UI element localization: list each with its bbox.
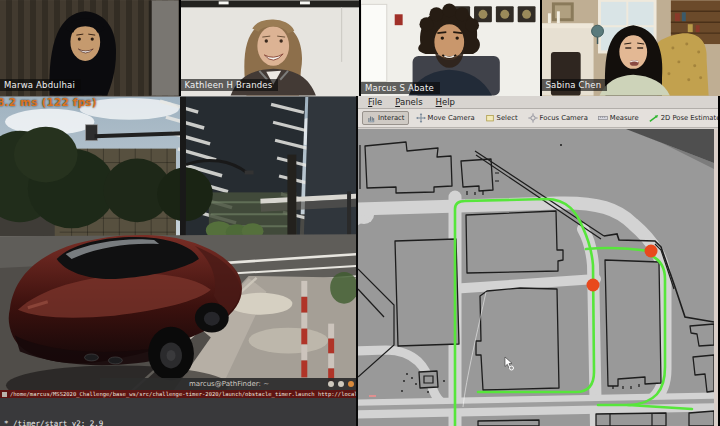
maximize-button[interactable] — [338, 381, 344, 387]
driving-simulator-viewport[interactable]: 8.2 ms (122 fps) marcus@PathFinder: ~ /h… — [0, 96, 358, 426]
move-icon — [416, 113, 426, 123]
fps-overlay: 8.2 ms (122 fps) — [0, 96, 97, 108]
tool-select[interactable]: Select — [482, 112, 521, 124]
terminal-tab[interactable]: /home/marcus/MSS2020_Challenge/base_ws/s… — [0, 390, 358, 398]
rviz-toolbar: Interact Move Camera Select Focus Camera… — [358, 109, 718, 128]
menu-file[interactable]: File — [368, 97, 382, 107]
tool-2d-pose-estimate[interactable]: 2D Pose Estimate — [646, 112, 718, 124]
terminal-titlebar[interactable]: marcus@PathFinder: ~ — [100, 378, 358, 390]
published-point — [587, 279, 600, 292]
rviz-side-panel-edge[interactable] — [714, 129, 718, 426]
rviz-window: File Panels Help Interact Move Camera Se… — [358, 96, 718, 426]
tool-move-camera[interactable]: Move Camera — [413, 112, 478, 124]
published-point — [645, 245, 658, 258]
menu-help[interactable]: Help — [436, 97, 455, 107]
video-call-strip: Marwa Abdulhai Kathleen H Brandes — [0, 0, 720, 96]
focus-icon — [528, 113, 538, 123]
hand-icon — [366, 113, 376, 123]
terminal-window[interactable]: marcus@PathFinder: ~ /home/marcus/MSS202… — [0, 378, 358, 426]
screen: Marwa Abdulhai Kathleen H Brandes — [0, 0, 720, 426]
video-tile-sabina[interactable]: Sabina Chen — [542, 0, 720, 96]
video-tile-kathleen[interactable]: Kathleen H Brandes — [181, 0, 360, 96]
participant-name: Kathleen H Brandes — [181, 79, 279, 91]
tool-interact[interactable]: Interact — [362, 111, 409, 125]
terminal-line: * /timer/start_y2: 2.9 — [4, 419, 358, 426]
terminal-icon — [2, 392, 7, 397]
participant-name: Sabina Chen — [542, 79, 608, 91]
rviz-map-viewport[interactable] — [358, 129, 714, 426]
participant-name: Marcus S Abate — [361, 82, 440, 94]
simulator-scene — [0, 96, 358, 426]
terminal-tab-title: /home/marcus/MSS2020_Challenge/base_ws/s… — [10, 391, 358, 397]
participant-name: Marwa Abdulhai — [0, 79, 81, 91]
menu-panels[interactable]: Panels — [395, 97, 422, 107]
close-button[interactable] — [348, 381, 354, 387]
rviz-menubar: File Panels Help — [358, 96, 718, 109]
terminal-title: marcus@PathFinder: ~ — [189, 380, 269, 388]
select-box-icon — [485, 113, 495, 123]
ruler-icon — [598, 113, 608, 123]
green-arrow-icon — [649, 113, 659, 123]
tool-focus-camera[interactable]: Focus Camera — [525, 112, 591, 124]
terminal-output[interactable]: * /timer/start_y2: 2.9 * /timer/team_num… — [0, 398, 358, 426]
video-tile-marwa[interactable]: Marwa Abdulhai — [0, 0, 179, 96]
tool-measure[interactable]: Measure — [595, 112, 642, 124]
minimize-button[interactable] — [328, 381, 334, 387]
video-tile-marcus[interactable]: Marcus S Abate — [361, 0, 540, 96]
